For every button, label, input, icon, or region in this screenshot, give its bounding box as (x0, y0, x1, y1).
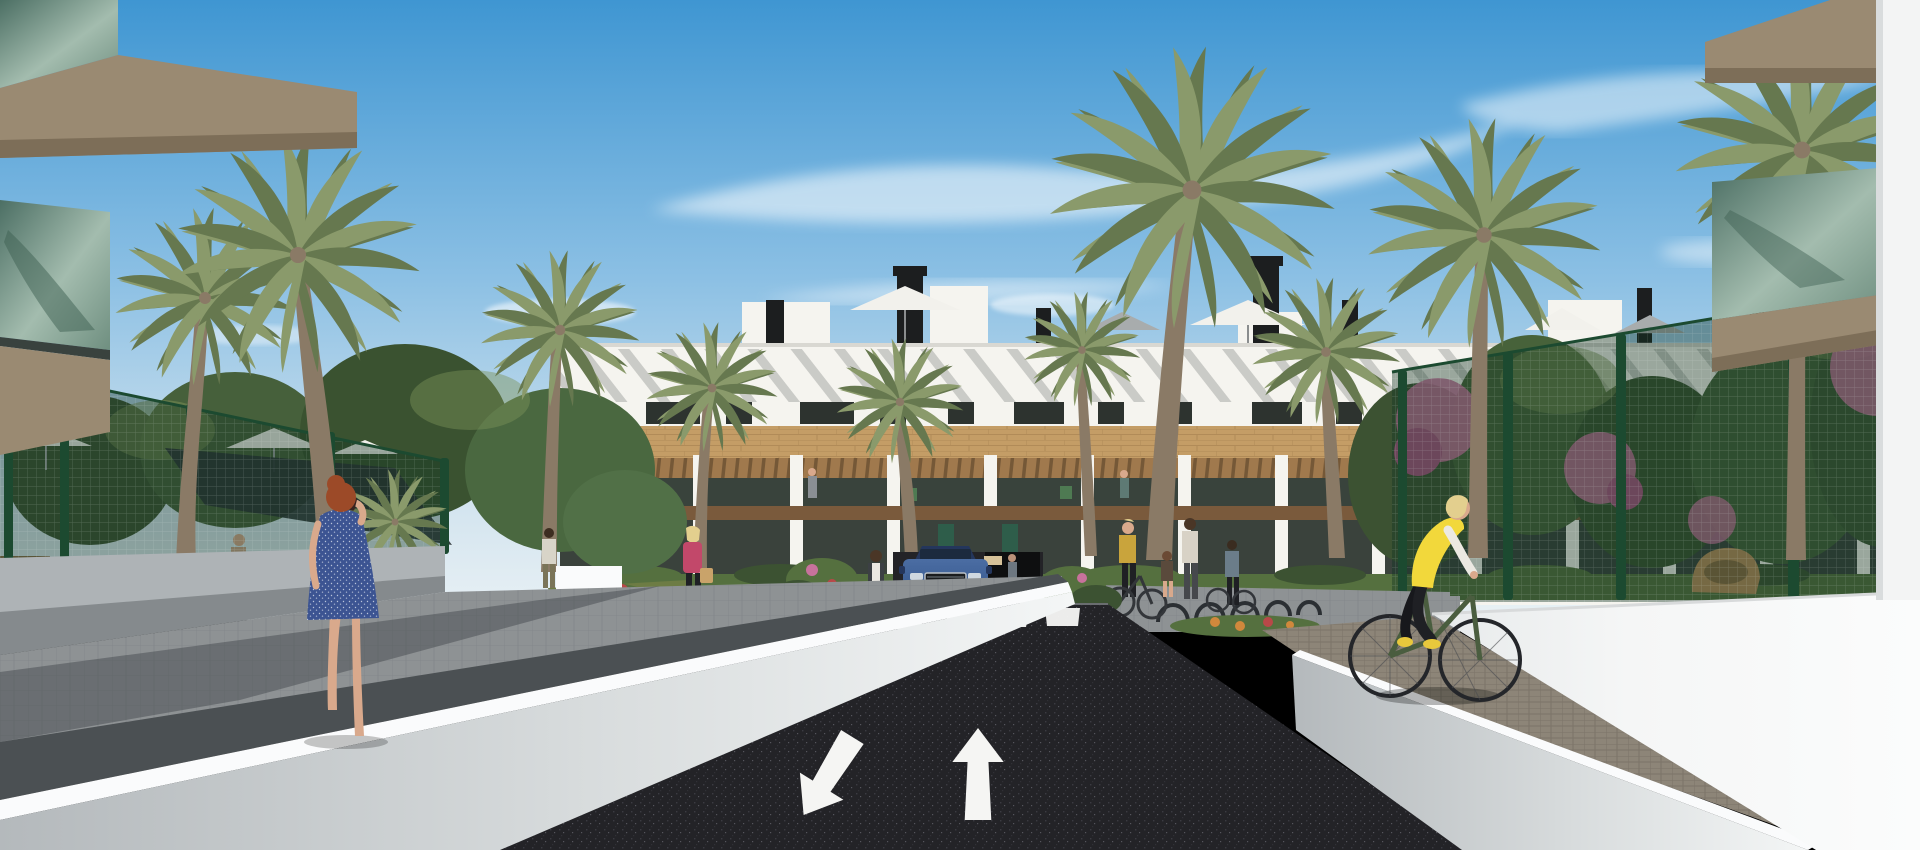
balcony-glass-lower (0, 200, 110, 350)
car-headlight (910, 573, 923, 580)
handbag (700, 568, 713, 583)
balcony-glass-right (1712, 168, 1878, 320)
render-canvas (0, 0, 1920, 850)
white-planter (556, 566, 622, 590)
scene-render (0, 0, 1920, 850)
car-windshield (920, 549, 971, 560)
yellow-shoe (1423, 639, 1441, 649)
